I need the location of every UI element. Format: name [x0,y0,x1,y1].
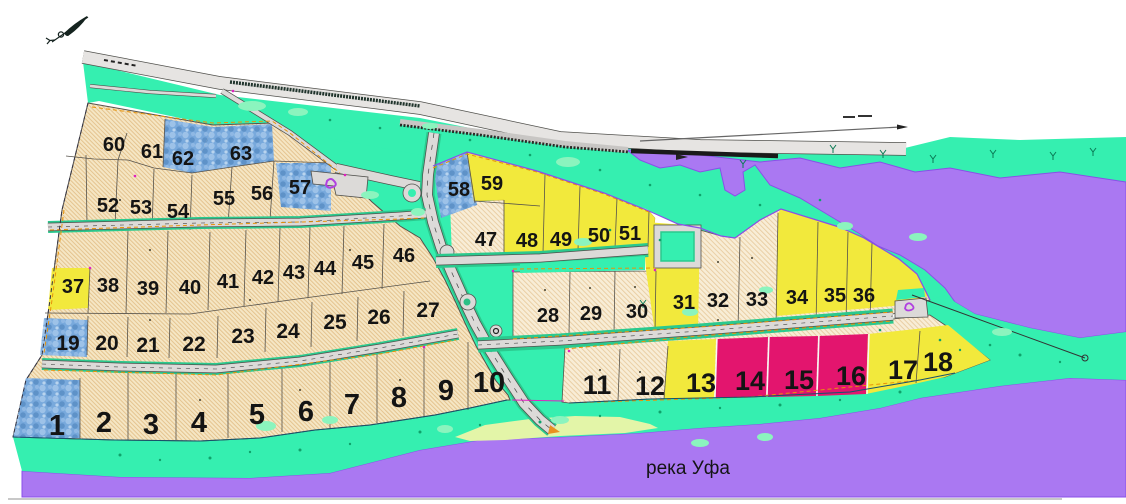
svg-text:34: 34 [786,287,809,309]
svg-text:41: 41 [217,271,239,293]
svg-text:30: 30 [626,301,648,323]
svg-text:12: 12 [635,371,665,401]
svg-text:8: 8 [391,382,407,414]
svg-text:19: 19 [56,332,79,355]
svg-text:54: 54 [167,201,190,223]
svg-text:40: 40 [179,277,201,299]
svg-text:9: 9 [438,375,454,407]
svg-text:23: 23 [231,325,254,348]
svg-text:63: 63 [230,143,252,165]
svg-text:22: 22 [182,333,205,356]
svg-text:37: 37 [62,276,84,298]
svg-text:1: 1 [49,410,65,442]
svg-text:53: 53 [130,197,152,219]
svg-text:24: 24 [276,320,300,343]
svg-text:14: 14 [735,366,765,396]
svg-text:44: 44 [314,258,337,280]
svg-text:21: 21 [136,334,160,357]
svg-text:35: 35 [824,285,846,307]
svg-text:50: 50 [588,225,610,247]
svg-text:39: 39 [137,278,159,300]
svg-text:28: 28 [537,305,559,327]
svg-text:10: 10 [473,367,505,399]
svg-text:17: 17 [888,355,918,385]
svg-text:33: 33 [746,289,768,311]
svg-text:56: 56 [251,183,273,205]
svg-text:55: 55 [213,188,235,210]
svg-text:4: 4 [191,407,207,439]
svg-text:38: 38 [97,275,119,297]
svg-text:3: 3 [143,409,159,441]
svg-text:57: 57 [289,177,311,199]
svg-text:13: 13 [686,368,716,398]
svg-text:52: 52 [97,195,119,217]
svg-text:49: 49 [550,229,572,251]
svg-text:18: 18 [923,347,953,377]
svg-text:25: 25 [323,311,347,334]
svg-text:48: 48 [516,230,538,252]
svg-text:20: 20 [95,332,118,355]
svg-text:27: 27 [416,299,439,322]
svg-text:61: 61 [141,141,163,163]
svg-text:2: 2 [96,407,112,439]
svg-text:60: 60 [103,134,125,156]
svg-text:36: 36 [853,285,875,307]
svg-text:26: 26 [367,306,390,329]
svg-text:16: 16 [836,361,866,391]
svg-text:7: 7 [344,389,360,421]
svg-text:6: 6 [298,396,314,428]
svg-text:5: 5 [249,399,265,431]
svg-text:11: 11 [583,370,612,400]
svg-text:43: 43 [283,262,305,284]
svg-text:31: 31 [673,292,695,314]
svg-text:42: 42 [252,267,274,289]
svg-text:58: 58 [448,179,470,201]
svg-text:15: 15 [784,365,814,395]
svg-text:река Уфа: река Уфа [646,458,730,479]
svg-text:59: 59 [481,173,503,195]
svg-text:32: 32 [707,290,729,312]
svg-text:62: 62 [172,148,194,170]
svg-text:45: 45 [352,252,374,274]
svg-text:51: 51 [619,223,641,245]
svg-text:47: 47 [475,229,497,251]
svg-text:29: 29 [580,303,602,325]
svg-text:46: 46 [393,245,415,267]
